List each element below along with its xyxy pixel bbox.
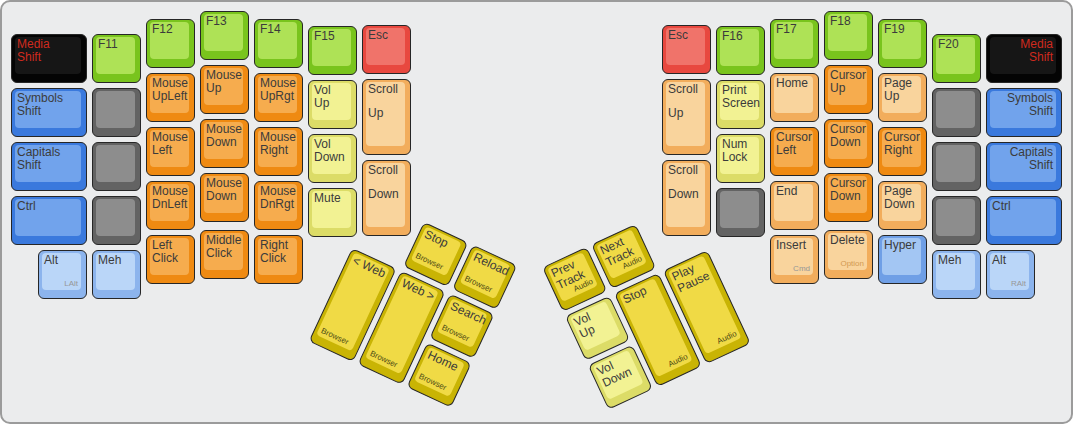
key-label: Shift — [17, 159, 79, 172]
keycap-face: F19 — [882, 22, 921, 59]
keycap-face: Meh — [936, 253, 975, 290]
keycap-face: StopBrowser — [411, 226, 462, 276]
keycap-face: End — [774, 184, 813, 221]
keycap-face: AltRAlt — [990, 253, 1029, 290]
keycap-face: ScrollUp — [366, 82, 405, 146]
keycap-face — [936, 91, 975, 128]
key-label: Symbols — [992, 92, 1053, 105]
key-label: Down — [668, 188, 703, 201]
keycap-face: PrevTrackAudio — [547, 252, 598, 302]
key-label: Down — [884, 198, 919, 211]
key-label: Esc — [668, 29, 703, 42]
keycap-face: VolUp — [312, 83, 351, 120]
key-home[interactable]: Home — [770, 73, 819, 122]
keycap-face: AltLAlt — [42, 253, 81, 290]
keycap-face: F13 — [204, 14, 243, 51]
key-mouse-upleft[interactable]: MouseUpLeft — [146, 73, 195, 122]
keycap-face: DeleteOption — [828, 233, 867, 270]
key-mouse-down[interactable]: MouseDown — [200, 119, 249, 168]
key-label: Middle — [206, 234, 241, 247]
keycap-face: F14 — [258, 22, 297, 59]
key-f18[interactable]: F18 — [824, 11, 873, 60]
keycap-face — [96, 145, 135, 182]
key-label: Meh — [98, 254, 133, 267]
key-mouse-right[interactable]: MouseRight — [254, 127, 303, 176]
key-label: Shift — [17, 105, 79, 118]
key-meh[interactable]: Meh — [92, 250, 141, 299]
key-label: Scroll — [368, 83, 403, 96]
keycap-face: NumLock — [720, 137, 759, 174]
keycap-face: NextTrackAudio — [596, 229, 647, 279]
key-label: Up — [206, 82, 241, 95]
keycap-face: F15 — [312, 29, 351, 66]
key-label: Shift — [17, 51, 79, 64]
key-sublabel: Browser — [418, 372, 448, 393]
key-label: F14 — [260, 23, 295, 36]
keycap-face: SymbolsShift — [990, 91, 1056, 128]
key-vol-down[interactable]: VolDown — [308, 134, 357, 183]
key-page-down[interactable]: PageDown — [878, 181, 927, 230]
key-label: Delete — [830, 234, 865, 247]
keycap-face: VolDown — [312, 137, 351, 174]
key-sublabel: Browser — [440, 323, 470, 344]
key-label: Down — [206, 136, 241, 149]
key-f19[interactable]: F19 — [878, 19, 927, 68]
key-f13[interactable]: F13 — [200, 11, 249, 60]
key-label: Up — [668, 107, 703, 120]
key-end[interactable]: End — [770, 181, 819, 230]
key-label: Web > — [399, 277, 436, 304]
key-f20[interactable]: F20 — [932, 34, 981, 83]
key-mouse-uprgt[interactable]: MouseUpRgt — [254, 73, 303, 122]
keycap-face: MediaShift — [990, 37, 1056, 74]
keycap-face: CursorDown — [828, 176, 867, 213]
key-label: Click — [260, 252, 295, 265]
key-mouse-down[interactable]: MouseDown — [200, 173, 249, 222]
key-num-lock[interactable]: NumLock — [716, 134, 765, 183]
key-insert[interactable]: InsertCmd — [770, 235, 819, 284]
key-mouse-up[interactable]: MouseUp — [200, 65, 249, 114]
key-f14[interactable]: F14 — [254, 19, 303, 68]
key-scroll-up[interactable]: ScrollUp — [662, 79, 711, 155]
key-symbols-shift[interactable]: SymbolsShift — [986, 88, 1062, 137]
key-label: F15 — [314, 30, 349, 43]
key-delete[interactable]: DeleteOption — [824, 230, 873, 279]
key-meh[interactable]: Meh — [932, 250, 981, 299]
keycap-face: F11 — [96, 37, 135, 74]
key-blank[interactable] — [716, 188, 765, 237]
key-label: F13 — [206, 15, 241, 28]
key-label: Hyper — [884, 239, 919, 252]
key-label: Right — [884, 144, 919, 157]
key-label: Left — [152, 144, 187, 157]
key-label: Capitals — [17, 146, 79, 159]
keycap-face: Mute — [312, 191, 351, 228]
keycap-face: VolDown — [593, 350, 644, 400]
key-label: Shift — [992, 159, 1053, 172]
key-scroll-up[interactable]: ScrollUp — [362, 79, 411, 155]
key-cursor-right[interactable]: CursorRight — [878, 127, 927, 176]
keycap-face: SearchBrowser — [437, 298, 488, 348]
keycap-face: MouseDnRgt — [258, 184, 297, 221]
keycap-face: CursorRight — [882, 130, 921, 167]
key-label: Click — [206, 247, 241, 260]
keycap-face: RightClick — [258, 238, 297, 275]
key-label: Click — [152, 252, 187, 265]
keycap-face: Hyper — [882, 238, 921, 275]
keyboard-layout-board: MediaShiftF11F12F13F14F15EscSymbolsShift… — [0, 0, 1073, 424]
keycap-face: F16 — [720, 29, 759, 66]
keycap-face: MouseLeft — [150, 130, 189, 167]
keycap-face: F20 — [936, 37, 975, 74]
key-label: F19 — [884, 23, 919, 36]
key-label: Alt — [44, 254, 79, 267]
key-label: Reload — [471, 251, 508, 278]
key-cursor-down[interactable]: CursorDown — [824, 173, 873, 222]
keycap-face: F12 — [150, 22, 189, 59]
key-label: Screen — [722, 97, 757, 110]
key-label: Down — [206, 190, 241, 203]
key-mouse-left[interactable]: MouseLeft — [146, 127, 195, 176]
key-label: Down — [830, 190, 865, 203]
keycap-face: PageDown — [882, 184, 921, 221]
key-media-shift[interactable]: MediaShift — [986, 34, 1062, 83]
key-label: Meh — [938, 254, 973, 267]
key-label: Home — [425, 349, 462, 376]
keycap-face: HomeBrowser — [414, 347, 465, 397]
keycap-face: Esc — [366, 28, 405, 65]
keycap-face: CursorLeft — [774, 130, 813, 167]
key-blank[interactable] — [932, 88, 981, 137]
key-sublabel: Audio — [667, 352, 689, 369]
keycap-face — [96, 199, 135, 236]
keycap-face: MouseDown — [204, 176, 243, 213]
keycap-face: MouseDnLeft — [150, 184, 189, 221]
key-label: DnRgt — [260, 198, 295, 211]
key-label: Esc — [368, 29, 403, 42]
key-label: Right — [260, 144, 295, 157]
key-blank[interactable] — [92, 88, 141, 137]
keycap-face: LeftClick — [150, 238, 189, 275]
key-label: Insert — [776, 239, 811, 252]
key-blank[interactable] — [932, 142, 981, 191]
key-label: < Web — [350, 254, 387, 281]
key-label: Up — [368, 107, 403, 120]
key-label: F12 — [152, 23, 187, 36]
key-label: Mute — [314, 192, 349, 205]
key-blank[interactable] — [932, 196, 981, 245]
key-sublabel: Cmd — [793, 264, 810, 273]
key-label: DnLeft — [152, 198, 187, 211]
key-sublabel: Browser — [320, 326, 350, 347]
keycap-face — [936, 145, 975, 182]
keycap-face: ScrollUp — [666, 82, 705, 146]
keycap-face: Meh — [96, 253, 135, 290]
key-label: Up — [884, 90, 919, 103]
key-left-click[interactable]: LeftClick — [146, 235, 195, 284]
key-f12[interactable]: F12 — [146, 19, 195, 68]
key-sublabel: Audio — [716, 329, 738, 346]
key-label: Scroll — [368, 164, 403, 177]
key-ctrl[interactable]: Ctrl — [11, 196, 87, 245]
key-mouse-dnrgt[interactable]: MouseDnRgt — [254, 181, 303, 230]
key-label: F16 — [722, 30, 757, 43]
key-blank[interactable] — [92, 196, 141, 245]
keycap-face: CursorDown — [828, 122, 867, 159]
keycap-face: Esc — [666, 28, 705, 65]
key-label: Left — [776, 144, 811, 157]
key-label: Lock — [722, 151, 757, 164]
key-mouse-dnleft[interactable]: MouseDnLeft — [146, 181, 195, 230]
keycap-face: VolUp — [570, 301, 621, 351]
key-cursor-left[interactable]: CursorLeft — [770, 127, 819, 176]
key-print-screen[interactable]: PrintScreen — [716, 80, 765, 129]
keycap-face: MouseUp — [204, 68, 243, 105]
key-label: Down — [830, 136, 865, 149]
key-sublabel: Browser — [414, 251, 444, 272]
key-label: Down — [368, 188, 403, 201]
key-hyper[interactable]: Hyper — [878, 235, 927, 284]
key-sublabel: Browser — [463, 274, 493, 295]
keycap-face — [936, 199, 975, 236]
key-label: End — [776, 185, 811, 198]
key-ctrl[interactable]: Ctrl — [986, 196, 1062, 245]
key-right-click[interactable]: RightClick — [254, 235, 303, 284]
key-f11[interactable]: F11 — [92, 34, 141, 83]
key-sublabel: Browser — [369, 349, 399, 370]
keycap-face: Ctrl — [15, 199, 81, 236]
keycap-face: CapitalsShift — [15, 145, 81, 182]
key-label: F20 — [938, 38, 973, 51]
key-alt[interactable]: AltLAlt — [38, 250, 87, 299]
keycap-face — [96, 91, 135, 128]
key-sublabel: LAlt — [64, 279, 78, 288]
key-mute[interactable]: Mute — [308, 188, 357, 237]
key-middle-click[interactable]: MiddleClick — [200, 230, 249, 279]
key-media-shift[interactable]: MediaShift — [11, 34, 87, 83]
key-cursor-up[interactable]: CursorUp — [824, 65, 873, 114]
key-label: Scroll — [668, 83, 703, 96]
key-f16[interactable]: F16 — [716, 26, 765, 75]
keycap-face: MouseDown — [204, 122, 243, 159]
keycap-face: F18 — [828, 14, 867, 51]
keycap-face: MouseRight — [258, 130, 297, 167]
key-label: Search — [448, 300, 485, 327]
key-label: Home — [776, 77, 811, 90]
keycap-face: MediaShift — [15, 37, 81, 74]
keycap-face: MouseUpLeft — [150, 76, 189, 113]
key-label: F17 — [776, 23, 811, 36]
key-label: Up — [314, 97, 349, 110]
key-label: Stop — [422, 228, 459, 255]
key-label: Alt — [992, 254, 1027, 267]
key-page-up[interactable]: PageUp — [878, 73, 927, 122]
keycap-face: F17 — [774, 22, 813, 59]
key-capitals-shift[interactable]: CapitalsShift — [986, 142, 1062, 191]
key-blank[interactable] — [92, 142, 141, 191]
key-label: Capitals — [992, 146, 1053, 159]
key-esc[interactable]: Esc — [662, 25, 711, 74]
key-label: Stop — [621, 280, 658, 307]
key-f15[interactable]: F15 — [308, 26, 357, 75]
keycap-face: PrintScreen — [720, 83, 759, 120]
key-label: Symbols — [17, 92, 79, 105]
key-symbols-shift[interactable]: SymbolsShift — [11, 88, 87, 137]
keycap-face: MouseUpRgt — [258, 76, 297, 113]
key-cursor-down[interactable]: CursorDown — [824, 119, 873, 168]
keycap-face: InsertCmd — [774, 238, 813, 275]
key-label: Ctrl — [992, 200, 1054, 213]
key-label: Scroll — [668, 164, 703, 177]
keycap-face: CapitalsShift — [990, 145, 1056, 182]
key-label: Shift — [992, 51, 1053, 64]
keycap-face: SymbolsShift — [15, 91, 81, 128]
key-label: UpRgt — [260, 90, 295, 103]
key-capitals-shift[interactable]: CapitalsShift — [11, 142, 87, 191]
key-label: Down — [314, 151, 349, 164]
key-label: UpLeft — [152, 90, 187, 103]
keycap-face: Ctrl — [990, 199, 1056, 236]
key-label: Media — [992, 38, 1053, 51]
key-label: Shift — [992, 105, 1053, 118]
key-sublabel: RAlt — [1011, 279, 1026, 288]
keycap-face: Home — [774, 76, 813, 113]
keycap-face: ReloadBrowser — [460, 249, 511, 299]
key-esc[interactable]: Esc — [362, 25, 411, 74]
keycap-face: PageUp — [882, 76, 921, 113]
keycap-face: CursorUp — [828, 68, 867, 105]
keycap-face — [720, 191, 759, 228]
key-label: Ctrl — [17, 200, 79, 213]
key-sublabel: Option — [840, 259, 864, 268]
key-alt[interactable]: AltRAlt — [986, 250, 1035, 299]
key-label: F18 — [830, 15, 865, 28]
key-label: Media — [17, 38, 79, 51]
keycap-face: MiddleClick — [204, 233, 243, 270]
key-label: Up — [830, 82, 865, 95]
key-vol-up[interactable]: VolUp — [308, 80, 357, 129]
key-label: F11 — [98, 38, 133, 51]
key-f17[interactable]: F17 — [770, 19, 819, 68]
